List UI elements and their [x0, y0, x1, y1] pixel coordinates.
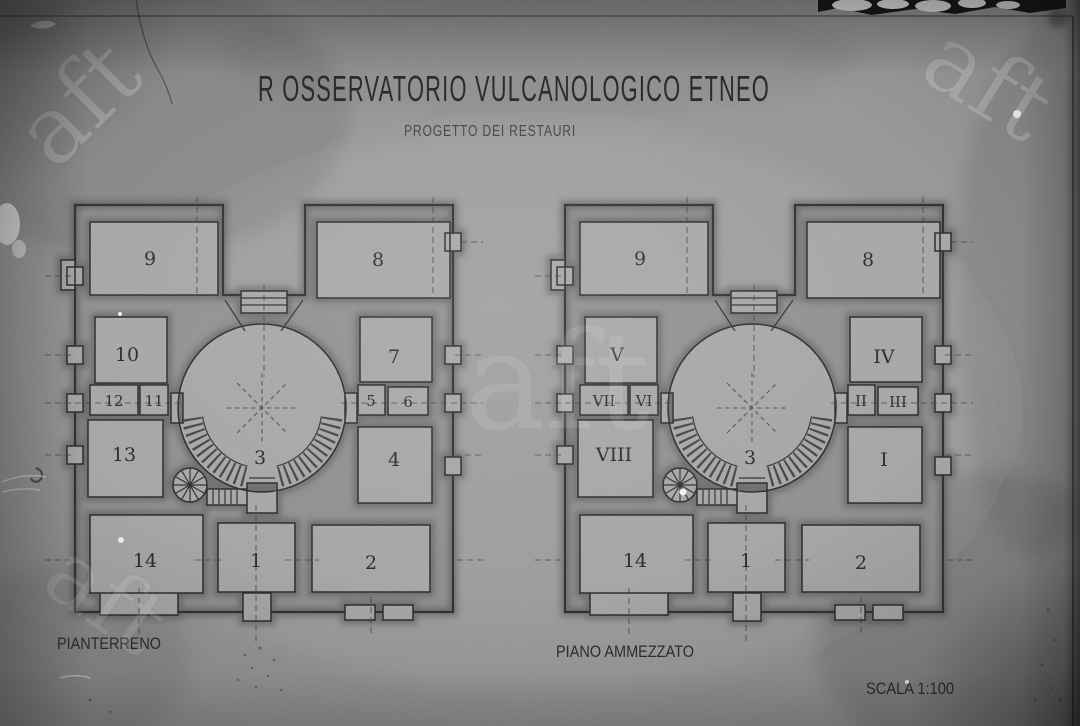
film-grain [0, 0, 1080, 726]
drawing-scene: R OSSERVATORIO VULCANOLOGICO ETNEO PROGE… [0, 0, 1080, 726]
archive-photo-plate: R OSSERVATORIO VULCANOLOGICO ETNEO PROGE… [0, 0, 1080, 726]
